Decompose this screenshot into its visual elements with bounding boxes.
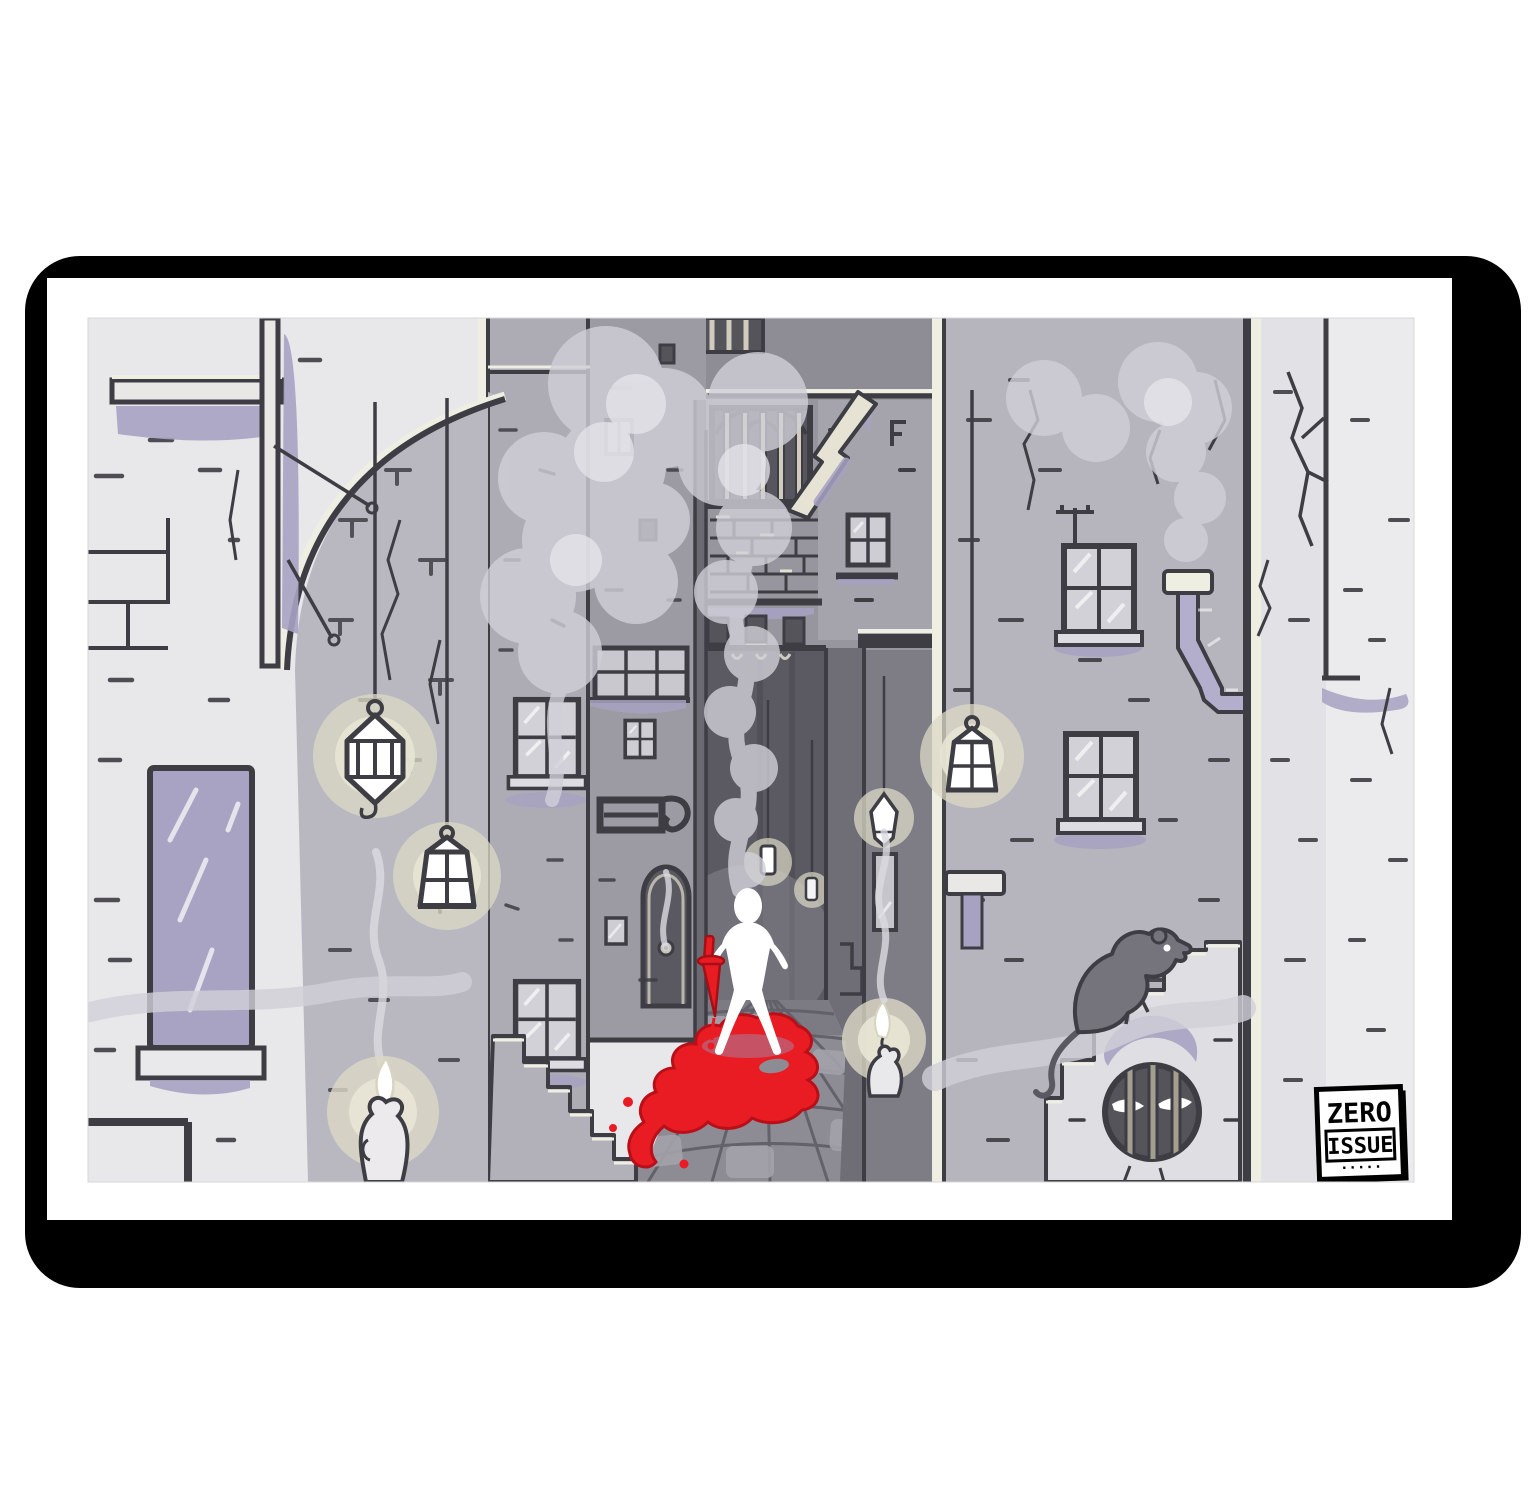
alley-scene: ZERO ISSUE ····· (88, 318, 1414, 1186)
stamp-line2: ISSUE (1327, 1133, 1394, 1160)
framed-poster: ZERO ISSUE ····· (0, 0, 1528, 1500)
page: ZERO ISSUE ····· (0, 0, 1528, 1500)
wall-mirror (138, 768, 264, 1095)
transom-window (588, 648, 690, 714)
stamp-line1: ZERO (1326, 1097, 1392, 1130)
right-light-walls (1243, 318, 1414, 1182)
stamp-line3: ····· (1340, 1159, 1383, 1176)
zero-issue-stamp: ZERO ISSUE ····· (1316, 1086, 1408, 1183)
